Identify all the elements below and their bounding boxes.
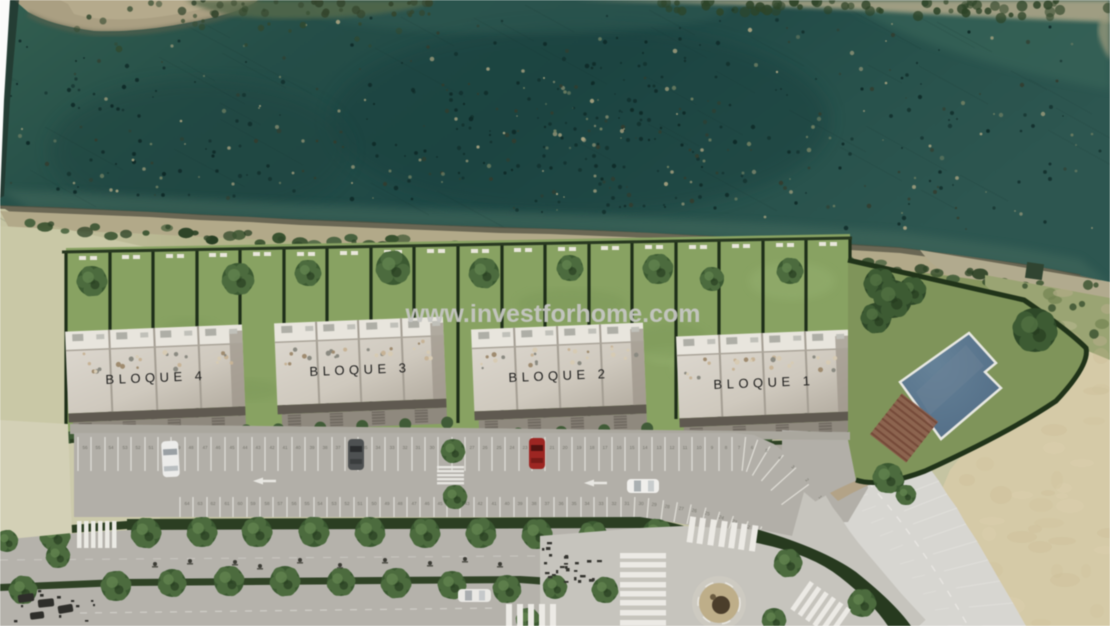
svg-text:45: 45 (229, 445, 235, 450)
svg-text:52: 52 (344, 501, 350, 506)
svg-text:43: 43 (255, 445, 261, 450)
svg-text:57: 57 (277, 501, 283, 506)
svg-text:51: 51 (357, 501, 363, 506)
svg-text:54: 54 (317, 501, 323, 506)
svg-text:27: 27 (469, 445, 475, 450)
svg-text:25: 25 (496, 445, 502, 450)
svg-text:58: 58 (264, 501, 270, 506)
svg-text:46: 46 (424, 501, 430, 506)
svg-text:19: 19 (576, 445, 582, 450)
svg-text:40: 40 (295, 445, 301, 450)
svg-text:21: 21 (549, 445, 555, 450)
svg-text:41: 41 (282, 445, 288, 450)
svg-text:32: 32 (611, 501, 617, 506)
svg-text:51: 51 (148, 445, 154, 450)
svg-text:46: 46 (215, 445, 221, 450)
svg-text:38: 38 (322, 445, 328, 450)
svg-text:www.investforhome.com: www.investforhome.com (405, 300, 701, 328)
svg-text:49: 49 (384, 501, 390, 506)
svg-text:26: 26 (482, 445, 488, 450)
svg-text:50: 50 (371, 501, 377, 506)
svg-text:55: 55 (304, 501, 310, 506)
svg-text:42: 42 (269, 445, 275, 450)
svg-text:47: 47 (411, 501, 417, 506)
svg-text:34: 34 (584, 501, 590, 506)
svg-text:8: 8 (725, 445, 728, 450)
svg-text:36: 36 (558, 501, 564, 506)
svg-text:29: 29 (651, 502, 657, 507)
svg-text:16: 16 (616, 445, 622, 450)
svg-text:33: 33 (389, 445, 395, 450)
svg-text:34: 34 (375, 445, 381, 450)
svg-text:12: 12 (669, 445, 675, 450)
svg-text:52: 52 (135, 445, 141, 450)
svg-text:60: 60 (237, 501, 243, 506)
svg-text:31: 31 (415, 445, 421, 450)
svg-text:37: 37 (544, 501, 550, 506)
svg-text:10: 10 (696, 445, 702, 450)
svg-text:42: 42 (477, 501, 483, 506)
svg-text:53: 53 (122, 445, 128, 450)
svg-text:53: 53 (331, 501, 337, 506)
svg-text:41: 41 (491, 501, 497, 506)
svg-text:48: 48 (397, 501, 403, 506)
svg-text:56: 56 (82, 445, 88, 450)
svg-text:32: 32 (402, 445, 408, 450)
svg-text:30: 30 (429, 445, 435, 450)
svg-text:47: 47 (202, 445, 208, 450)
svg-text:7: 7 (738, 445, 741, 450)
svg-text:40: 40 (504, 501, 510, 506)
svg-text:37: 37 (335, 445, 341, 450)
svg-text:54: 54 (108, 445, 114, 450)
svg-text:61: 61 (224, 501, 230, 506)
svg-text:33: 33 (598, 501, 604, 506)
svg-text:11: 11 (683, 445, 688, 450)
svg-text:38: 38 (531, 501, 537, 506)
svg-text:31: 31 (624, 501, 630, 506)
svg-text:59: 59 (250, 501, 256, 506)
svg-text:55: 55 (95, 445, 101, 450)
svg-text:24: 24 (509, 445, 515, 450)
svg-text:15: 15 (629, 445, 635, 450)
svg-text:56: 56 (291, 501, 297, 506)
svg-text:23: 23 (522, 445, 528, 450)
svg-text:39: 39 (517, 501, 523, 506)
svg-text:13: 13 (656, 445, 662, 450)
svg-text:63: 63 (197, 501, 203, 506)
svg-text:18: 18 (589, 445, 595, 450)
svg-text:9: 9 (711, 445, 714, 450)
svg-text:35: 35 (571, 501, 577, 506)
svg-text:39: 39 (309, 445, 315, 450)
svg-text:17: 17 (602, 445, 608, 450)
svg-text:45: 45 (437, 501, 443, 506)
svg-text:64: 64 (184, 501, 190, 506)
svg-text:62: 62 (210, 501, 216, 506)
svg-text:30: 30 (638, 501, 644, 506)
svg-text:14: 14 (642, 445, 648, 450)
svg-text:48: 48 (188, 445, 194, 450)
svg-text:20: 20 (562, 445, 568, 450)
svg-text:44: 44 (242, 445, 248, 450)
